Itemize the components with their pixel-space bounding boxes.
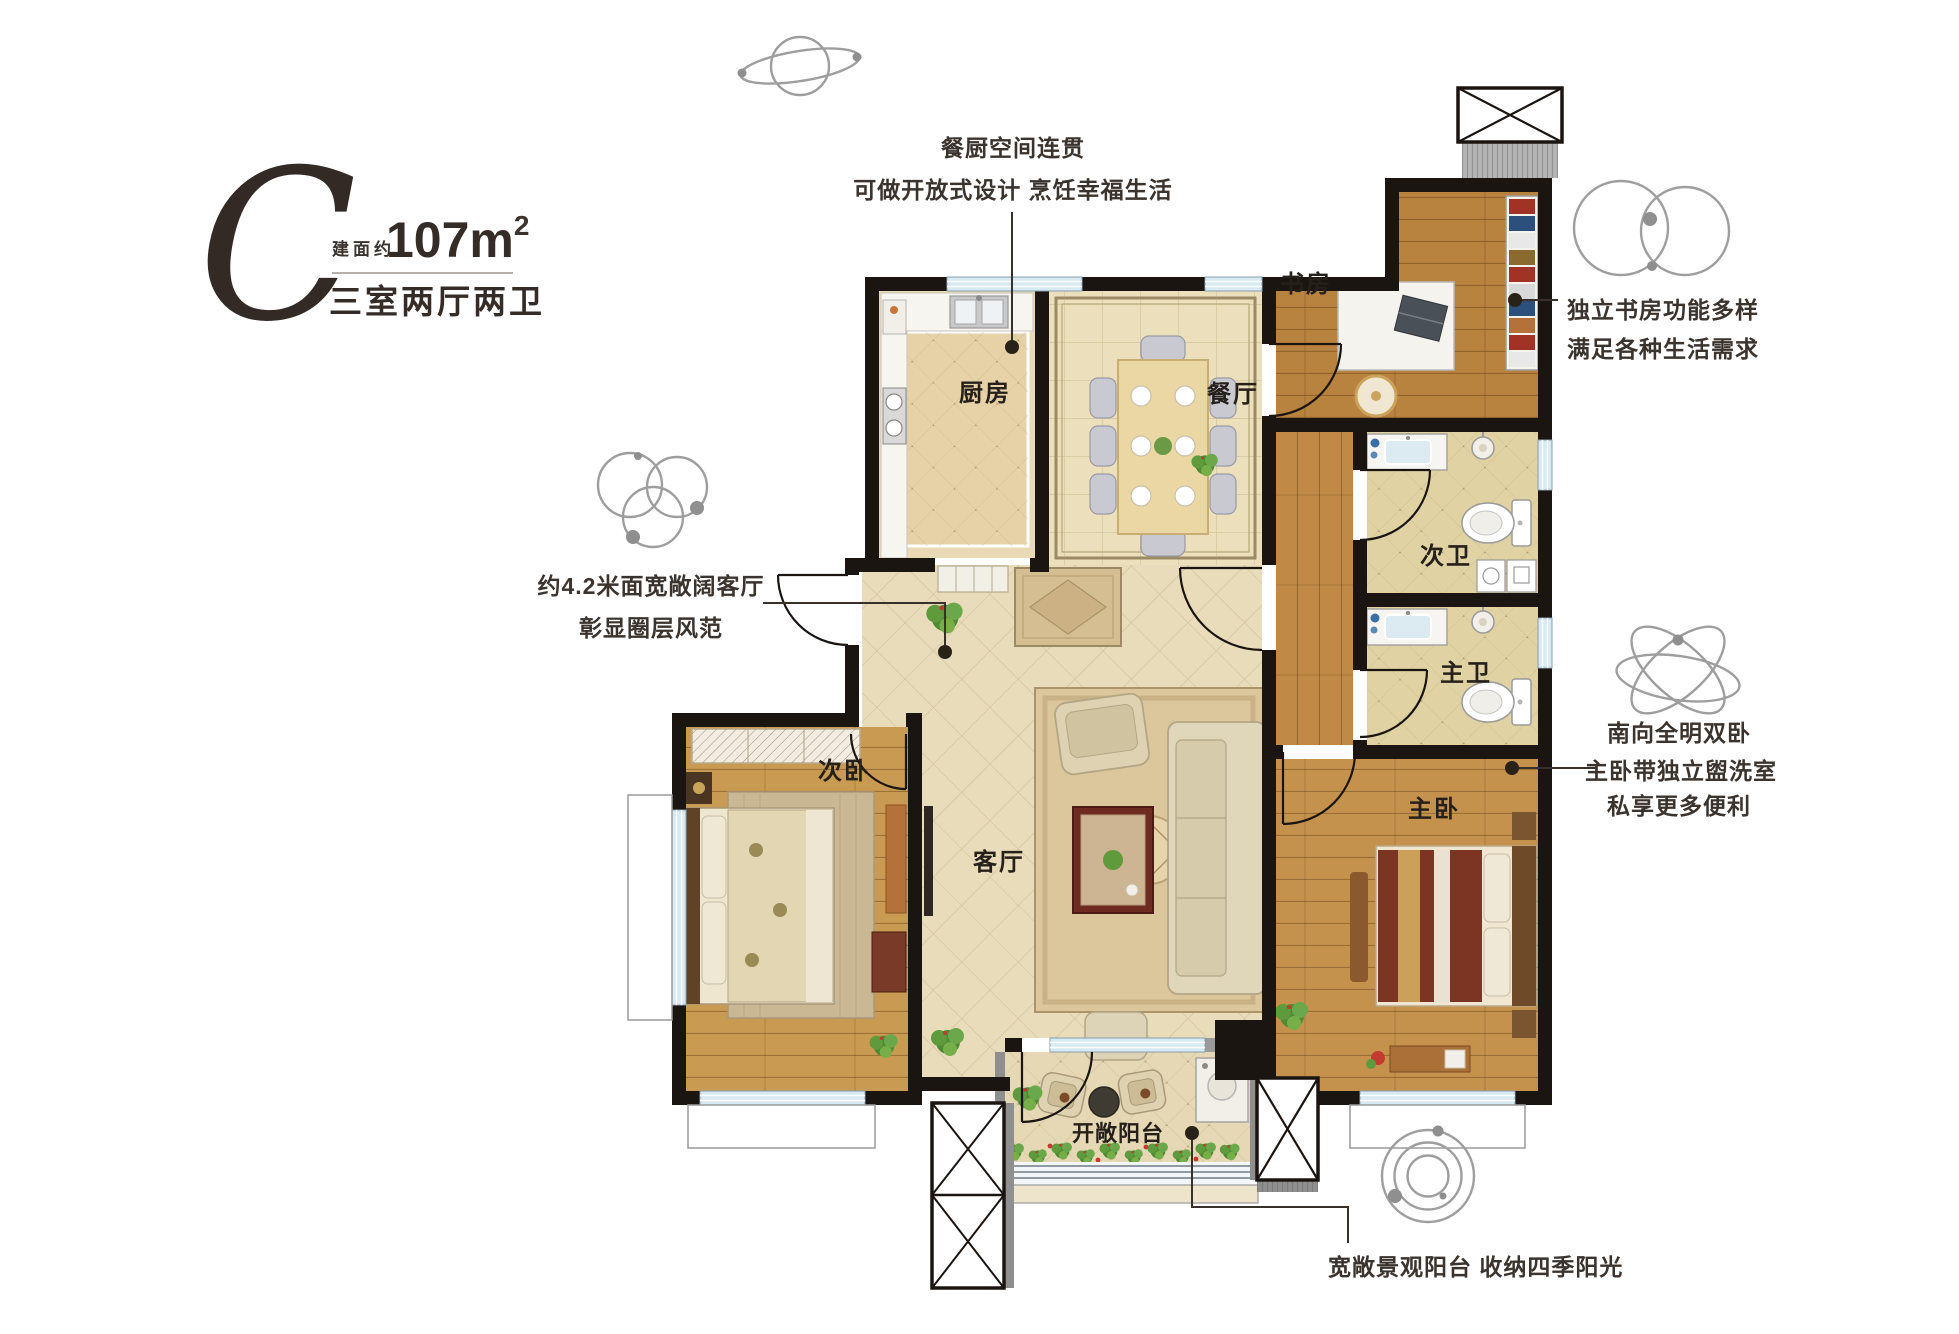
entry-mat [1015,568,1121,646]
door-entry [778,575,848,645]
annotation-master-line3: 私享更多便利 [1607,793,1751,819]
coffee-table [1073,807,1153,913]
annotation-master-line1: 南向全明双卧 [1607,720,1751,746]
left-shaft [932,1103,1014,1288]
tv-screen [924,806,933,916]
bath-sink [1367,609,1447,645]
shoe-cabinet [938,566,1008,592]
venn-circles-icon [598,452,707,547]
floorplan-canvas: 厨房 餐厅 书房 次卫 主卫 次卧 客厅 主卧 开敞阳台 C 建面约 107m2… [0,0,1959,1334]
label-second-bath: 次卫 [1420,543,1472,570]
layout-text: 三室两厅两卫 [329,283,545,320]
window [947,277,1082,291]
title-block: C 建面约 107m2 三室两厅两卫 [198,126,545,368]
balcony-sill [995,1185,1258,1203]
balcony-chair [1036,1071,1087,1119]
right-shaft [1257,1078,1318,1192]
balcony-table [1089,1087,1119,1117]
nightstand [1512,1010,1536,1038]
window [1538,440,1552,490]
annotation-balcony-line1: 宽敞景观阳台 收纳四季阳光 [1328,1254,1623,1280]
label-master-bath: 主卫 [1440,660,1492,687]
study-chair [1356,376,1396,416]
armchair [1053,692,1150,776]
toilet [1462,500,1531,546]
annotation-study-line2: 满足各种生活需求 [1567,336,1759,362]
bed-bench [1350,872,1368,982]
bay-window-sill [688,1105,875,1148]
nightstand [686,772,712,804]
label-second-bedroom: 次卧 [818,758,870,785]
bay-window-sill [628,795,672,1020]
label-living-room: 客厅 [973,848,1025,876]
label-study: 书房 [1280,270,1332,298]
kitchen-area [881,293,1033,558]
annotation-study-line1: 独立书房功能多样 [1567,297,1759,323]
atom-orbits-icon [1614,612,1743,728]
window [1205,277,1262,291]
sofa [1168,722,1266,994]
label-balcony: 开敞阳台 [1072,1121,1164,1146]
window [1538,618,1552,668]
nightstand [1512,812,1536,840]
top-shaft [1458,88,1562,178]
annotation-living-line1: 约4.2米面宽敞阔客厅 [538,573,765,599]
tv-console [886,805,906,913]
balcony-chair [1117,1068,1167,1115]
dining-centerpiece [1154,437,1172,455]
annotation-living-line2: 彰显圈层风范 [579,615,723,641]
floorplan-page: 厨房 餐厅 书房 次卫 主卫 次卧 客厅 主卧 开敞阳台 C 建面约 107m2… [0,0,1959,1334]
window [1360,1091,1515,1105]
annotation-master-line2: 主卧带独立盥洗室 [1585,758,1777,784]
saturn-orbit-icon [738,37,862,95]
window [700,1091,865,1105]
washer-units [1477,560,1536,592]
chest [872,932,906,992]
kitchen-cutting-board [883,300,906,334]
label-dining: 餐厅 [1207,381,1259,408]
ottoman [1085,1012,1147,1060]
bath-sink [1367,434,1447,470]
master-bed [1376,846,1536,1006]
label-kitchen: 厨房 [959,379,1011,407]
window [672,810,686,1005]
overlap-circles-icon [1574,181,1729,275]
area-value: 107m2 [386,210,529,268]
label-master-bedroom: 主卧 [1408,796,1460,823]
kitchen-sink [950,295,1008,328]
bookshelf [1506,196,1538,370]
annotation-kitchen-line1: 餐厨空间连贯 [941,135,1085,161]
balcony-railing [1005,1162,1250,1186]
kitchen-stove [883,388,906,444]
balcony-glass-door [1050,1038,1215,1052]
annotation-kitchen-line2: 可做开放式设计 烹饪幸福生活 [853,177,1172,203]
second-bed [686,808,834,1004]
